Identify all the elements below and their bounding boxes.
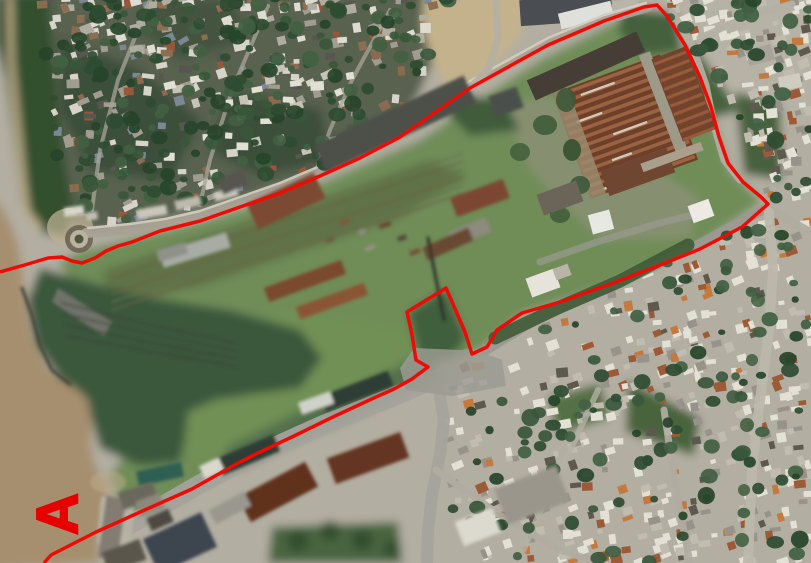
svg-text:A: A bbox=[26, 493, 91, 535]
